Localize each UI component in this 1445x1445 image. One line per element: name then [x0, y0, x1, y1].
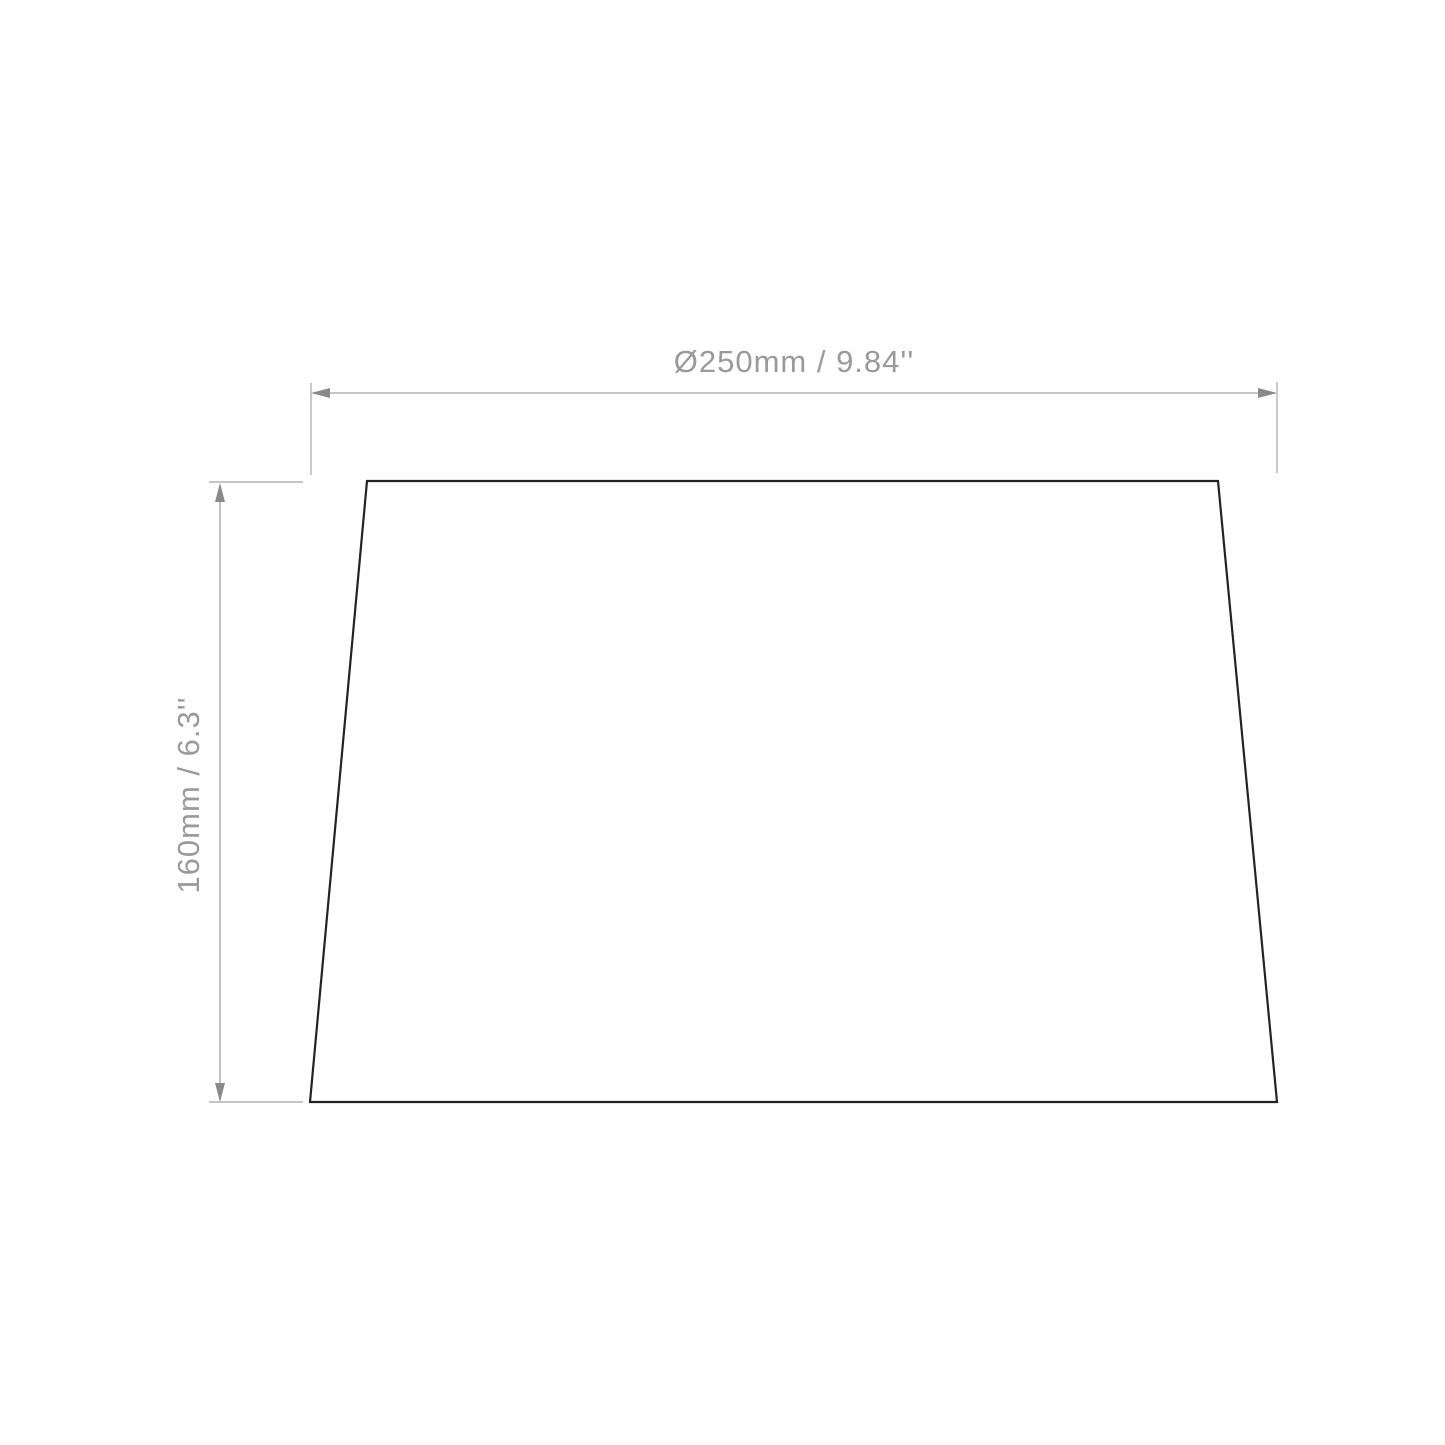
- lampshade-outline: [310, 481, 1277, 1102]
- height-arrow-down-icon: [215, 1083, 225, 1102]
- dimension-drawing: Ø250mm / 9.84'' 160mm / 6.3'': [0, 0, 1445, 1445]
- width-arrow-right-icon: [1258, 388, 1277, 398]
- width-dimension-label: Ø250mm / 9.84'': [674, 344, 915, 379]
- height-arrow-up-icon: [215, 483, 225, 502]
- drawing-svg: Ø250mm / 9.84'' 160mm / 6.3'': [0, 0, 1445, 1445]
- width-arrow-left-icon: [311, 388, 330, 398]
- height-dimension-label: 160mm / 6.3'': [171, 696, 206, 893]
